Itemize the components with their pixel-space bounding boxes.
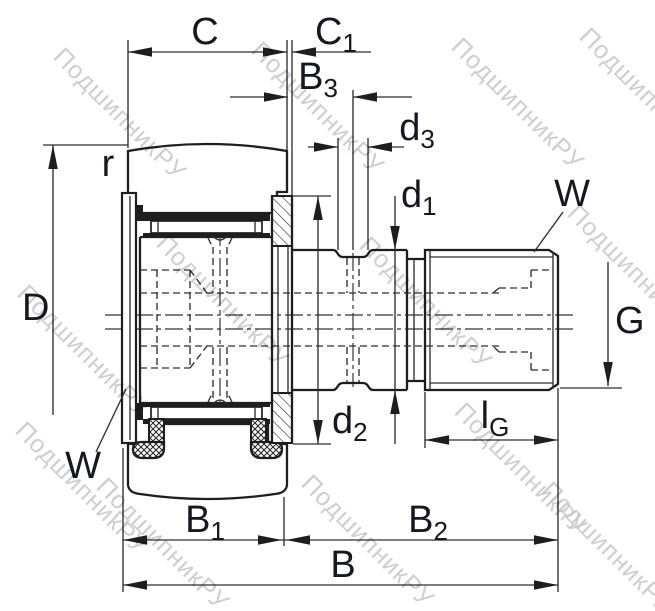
annotation-r: r xyxy=(102,143,115,185)
label-B2-sub: 2 xyxy=(433,516,447,546)
label-B2-base: B xyxy=(408,499,433,541)
label-B1-base: B xyxy=(185,499,210,541)
label-B: B xyxy=(330,544,355,586)
dimension-C1: C1 xyxy=(292,11,371,58)
label-G: G xyxy=(615,300,645,342)
watermark-text: ПодшипникРУ xyxy=(446,32,590,176)
dimension-d2: d2 xyxy=(293,196,368,447)
label-d2-sub: 2 xyxy=(353,417,367,447)
label-d3-sub: 3 xyxy=(420,124,434,154)
watermark-text: ПодшипникРУ xyxy=(48,42,192,186)
label-d2-base: d xyxy=(332,400,353,442)
label-d2: d2 xyxy=(332,400,368,447)
technical-drawing-canvas: C C1 B3 d3 d1 d2 xyxy=(0,0,655,611)
label-d1-base: d xyxy=(401,174,422,216)
label-d1-sub: 1 xyxy=(422,191,436,221)
watermark-text: ПодшипникРУ xyxy=(574,22,655,166)
label-C1-base: C xyxy=(315,11,342,53)
label-d1: d1 xyxy=(401,174,437,221)
label-d3: d3 xyxy=(399,107,435,154)
seal-left xyxy=(133,419,164,458)
label-r: r xyxy=(102,143,115,185)
label-B1-sub: 1 xyxy=(210,516,224,546)
label-d3-base: d xyxy=(399,107,420,149)
label-C1-sub: 1 xyxy=(342,28,356,58)
label-C: C xyxy=(191,11,218,53)
label-C1: C1 xyxy=(315,11,357,58)
needle-rollers-top xyxy=(136,205,270,237)
label-B1: B1 xyxy=(185,499,225,546)
watermark-text: ПодшипникРУ xyxy=(536,476,655,611)
stud-collar xyxy=(272,196,292,443)
label-B2: B2 xyxy=(408,499,448,546)
bearing-cross-section-drawing: C C1 B3 d3 d1 d2 xyxy=(0,0,655,611)
